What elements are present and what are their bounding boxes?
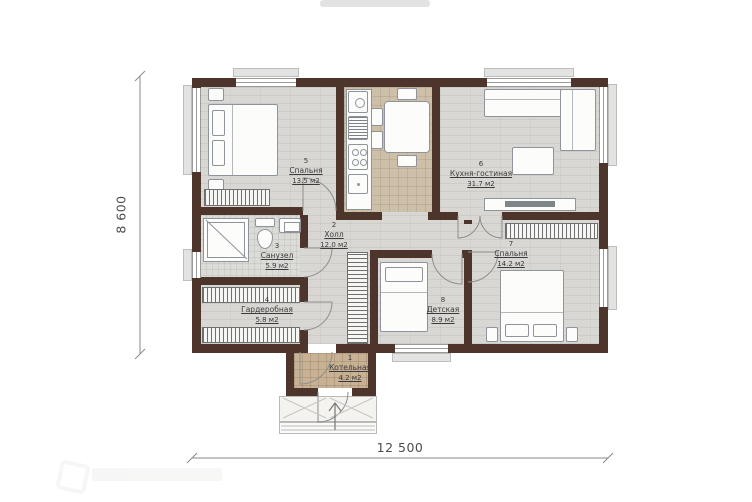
room-area: 5.8 м2	[212, 316, 322, 325]
watermark-logo-icon	[55, 459, 91, 495]
wall-entry-bottom-a	[286, 388, 318, 396]
bed-blanket-line	[501, 312, 563, 313]
nightstand	[566, 327, 578, 342]
wardrobe-bedroom5	[204, 189, 270, 206]
burner	[360, 159, 367, 166]
porch-steps	[279, 422, 377, 434]
room-area: 8.9 м2	[388, 316, 498, 325]
closet-hall	[347, 252, 368, 344]
porch-deck	[279, 396, 377, 422]
sill-bathroom-left	[183, 249, 192, 281]
wall-hall-top-a	[336, 212, 382, 220]
room-number: 7	[456, 240, 566, 249]
burner	[360, 149, 367, 156]
room-label-wardrobe: 4 Гардеробная 5.8 м2	[212, 296, 322, 325]
wall-bath-wardrobe-divider	[200, 277, 308, 285]
dimension-width: 12 500	[360, 440, 440, 455]
room-label-boiler: 1 Котельная 4.2 м2	[295, 354, 405, 383]
wall-bedroom5-bottom-a	[200, 207, 303, 215]
kitchen-oven	[348, 116, 368, 140]
wall-hall-top-c	[502, 212, 608, 220]
wall-kitchen-partition	[432, 86, 440, 212]
wall-nursery-top-a	[370, 250, 432, 258]
closet-bedroom7	[505, 223, 598, 239]
sofa-chaise	[560, 89, 596, 151]
room-name: Гардеробная	[212, 305, 322, 315]
room-number: 8	[388, 296, 498, 305]
window-living-right	[599, 87, 608, 163]
tv-screen	[505, 201, 555, 207]
wall-bottom-3	[448, 344, 608, 353]
room-number: 3	[222, 242, 332, 251]
pillow	[385, 267, 423, 282]
wall-nursery-left	[370, 252, 378, 344]
window-bedroom7-right	[599, 249, 608, 307]
sofa-seat-line	[572, 90, 573, 150]
room-area: 5.9 м2	[222, 262, 332, 271]
wall-left-1	[192, 78, 201, 88]
window-bathroom-left	[192, 252, 201, 278]
wardrobe-shelves-bottom	[202, 327, 300, 343]
bed-blanket-line	[381, 292, 427, 293]
nightstand	[208, 88, 224, 101]
watermark	[58, 462, 238, 492]
room-number: 6	[426, 160, 536, 169]
wall-bottom-1	[192, 344, 300, 353]
sill-living-right	[608, 84, 617, 166]
dining-chair	[397, 88, 417, 100]
room-area: 13.5 м2	[251, 177, 361, 186]
dim-tick	[135, 71, 145, 81]
wall-bath-right-c	[300, 330, 308, 353]
room-name: Санузел	[222, 251, 332, 261]
kitchen-sink	[348, 91, 368, 113]
room-number: 4	[212, 296, 322, 305]
sink-basin	[355, 98, 365, 108]
pillow	[212, 110, 225, 136]
wall-left-3	[192, 278, 201, 353]
dining-chair	[371, 108, 383, 126]
wall-bedroom7-left-a	[464, 220, 472, 224]
watermark-text-blur	[92, 468, 222, 481]
room-number: 5	[251, 157, 361, 166]
room-label-nursery: 8 Детская 8.9 м2	[388, 296, 498, 325]
room-label-bedroom7: 7 Спальня 14.2 м2	[456, 240, 566, 269]
room-area: 31.7 м2	[426, 180, 536, 189]
wall-top-2	[296, 78, 487, 87]
window-bedroom5-top	[236, 78, 296, 87]
dining-chair	[397, 155, 417, 167]
room-area: 14.2 м2	[456, 260, 566, 269]
wall-entry-bottom-b	[352, 388, 376, 396]
sill-living-top	[484, 68, 574, 77]
window-bedroom5-left	[192, 88, 201, 172]
wall-hall-top-b	[428, 212, 458, 220]
wall-right-2	[599, 163, 608, 249]
nightstand	[486, 327, 498, 342]
dim-tick	[135, 349, 145, 359]
dim-tick	[603, 453, 613, 463]
bed-blanket-line	[232, 105, 233, 175]
burner	[352, 149, 359, 156]
room-name: Спальня	[251, 166, 361, 176]
wall-bedroom5-right	[336, 78, 344, 215]
dining-chair	[371, 131, 383, 149]
top-logo-smudge	[320, 0, 430, 7]
wall-bottom-2	[336, 344, 395, 353]
room-name: Холл	[279, 230, 389, 240]
room-number: 2	[279, 221, 389, 230]
room-name: Кухня-гостиная	[426, 169, 536, 179]
pillow	[212, 140, 225, 166]
toilet-tank	[255, 218, 275, 227]
room-name: Спальня	[456, 249, 566, 259]
room-name: Детская	[388, 305, 498, 315]
wall-right-1	[599, 78, 608, 87]
room-name: Котельная	[295, 363, 405, 373]
floor-plan-canvas: 1 Котельная 4.2 м2 2 Холл 12.0 м2 3 Сану…	[0, 0, 752, 502]
pillow	[505, 324, 529, 337]
pillow	[533, 324, 557, 337]
window-nursery-bottom	[395, 344, 448, 353]
sill-bedroom7-right	[608, 246, 617, 310]
sill-bedroom5-top	[233, 68, 299, 77]
window-living-top	[487, 78, 571, 87]
sill-bedroom5-left	[183, 85, 192, 175]
room-label-kitchen-living: 6 Кухня-гостиная 31.7 м2	[426, 160, 536, 189]
room-label-bathroom: 3 Санузел 5.9 м2	[222, 242, 332, 271]
room-number: 1	[295, 354, 405, 363]
dining-table	[384, 101, 430, 153]
dimension-height: 8 600	[114, 184, 129, 246]
room-area: 4.2 м2	[295, 374, 405, 383]
wall-right-3	[599, 307, 608, 353]
room-label-bedroom5: 5 Спальня 13.5 м2	[251, 157, 361, 186]
